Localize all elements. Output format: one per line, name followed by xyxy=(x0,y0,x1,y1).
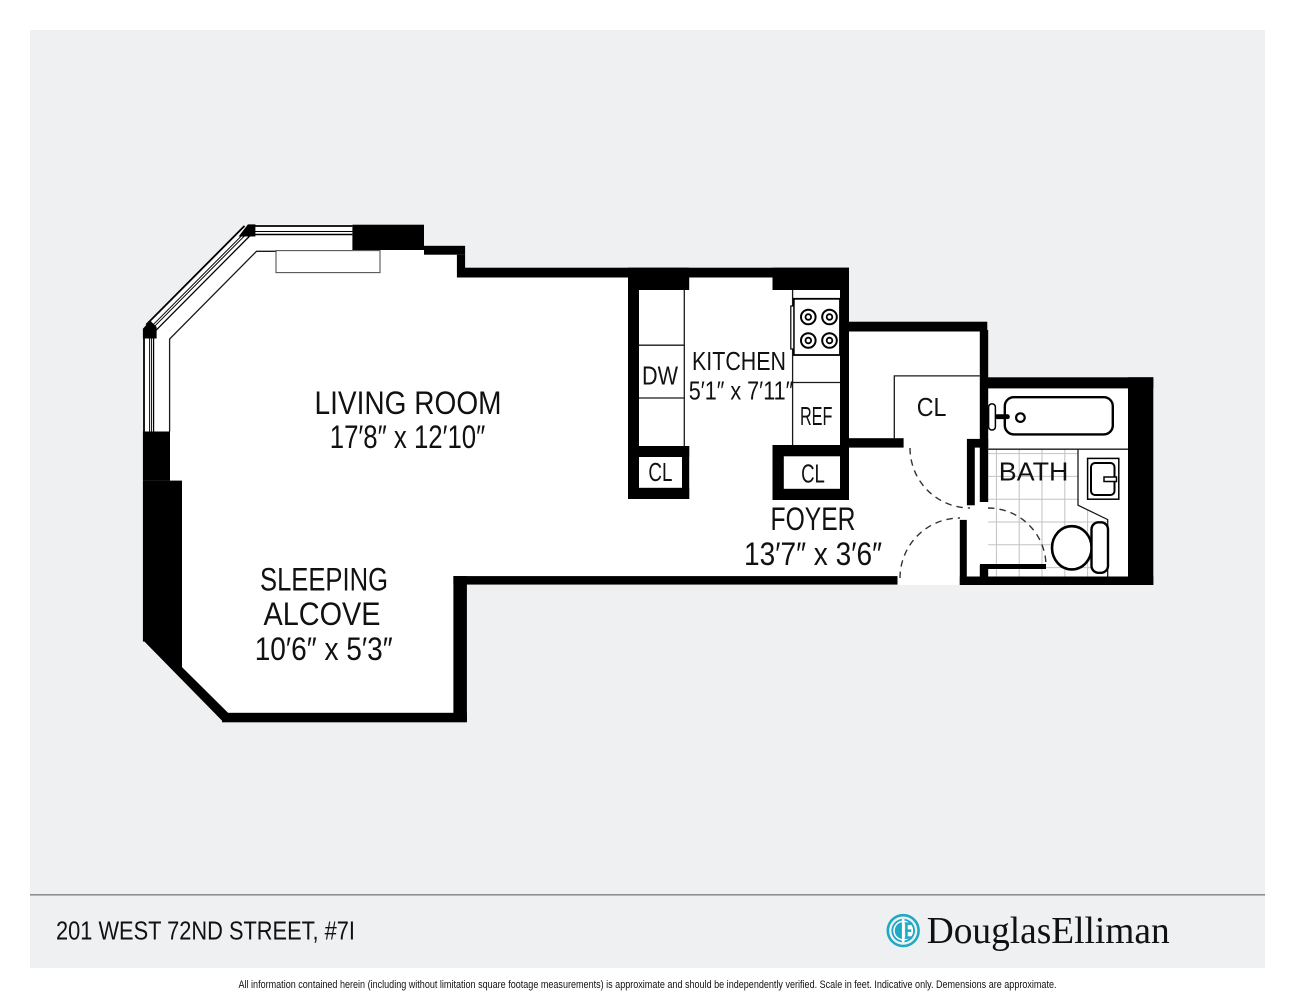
svg-text:DW: DW xyxy=(642,361,678,391)
svg-text:10′6″ x 5′3″: 10′6″ x 5′3″ xyxy=(255,631,393,667)
svg-text:REF: REF xyxy=(800,401,833,431)
svg-text:KITCHEN: KITCHEN xyxy=(692,346,786,376)
svg-text:All information contained here: All information contained herein (includ… xyxy=(239,979,1057,991)
svg-text:ALCOVE: ALCOVE xyxy=(264,596,381,632)
svg-text:LIVING ROOM: LIVING ROOM xyxy=(315,385,502,421)
svg-text:201 WEST 72ND STREET, #7I: 201 WEST 72ND STREET, #7I xyxy=(56,916,355,946)
svg-text:CL: CL xyxy=(801,459,825,489)
svg-text:5′1″ x 7′11″: 5′1″ x 7′11″ xyxy=(689,375,794,405)
svg-text:DouglasElliman: DouglasElliman xyxy=(927,910,1170,952)
svg-text:SLEEPING: SLEEPING xyxy=(260,561,388,597)
svg-text:FOYER: FOYER xyxy=(771,501,856,537)
svg-text:13′7″ x 3′6″: 13′7″ x 3′6″ xyxy=(744,536,882,572)
svg-text:CL: CL xyxy=(648,457,672,487)
svg-text:17′8″ x 12′10″: 17′8″ x 12′10″ xyxy=(330,419,486,455)
svg-text:CL: CL xyxy=(917,392,947,422)
svg-text:BATH: BATH xyxy=(999,456,1069,486)
